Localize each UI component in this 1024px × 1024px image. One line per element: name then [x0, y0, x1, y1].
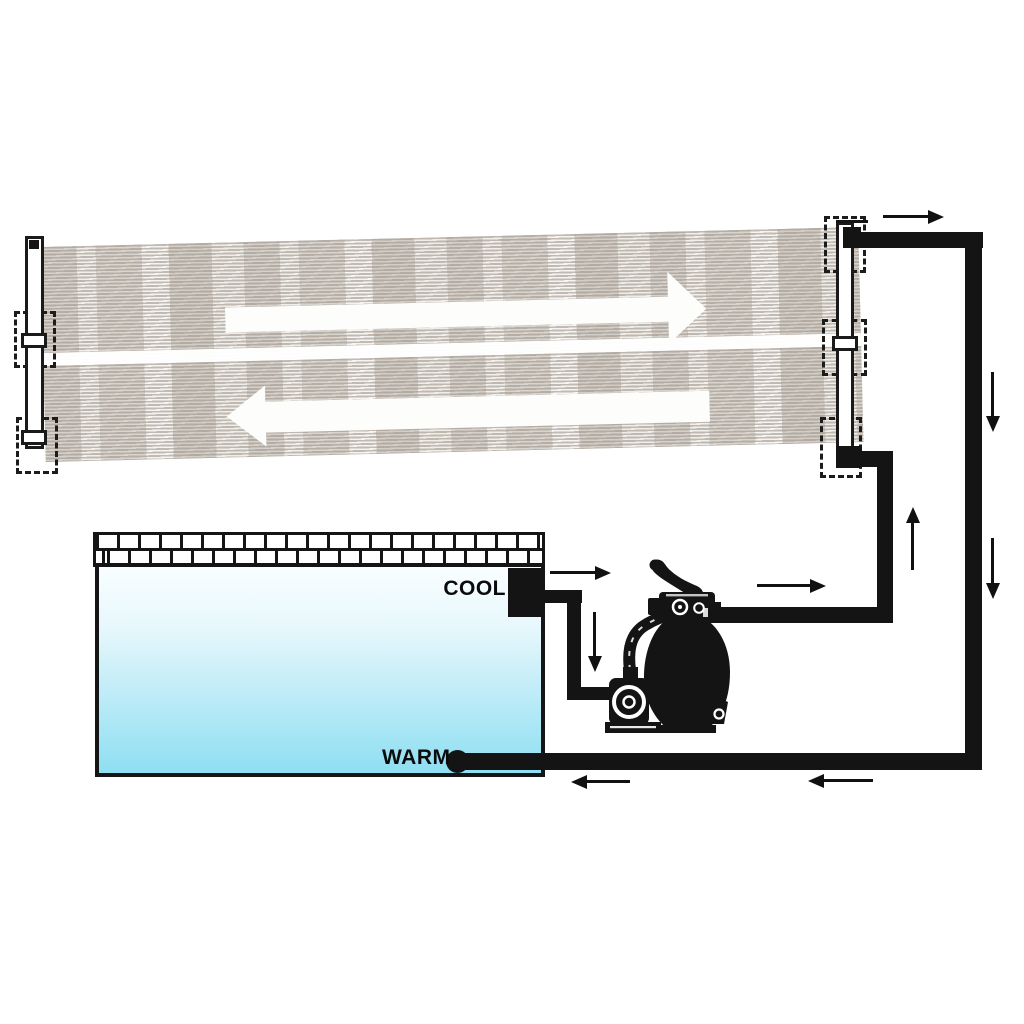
flow-arrow-pump-outlet-icon — [757, 584, 810, 587]
flow-arrow-return-left-inner-icon — [587, 780, 630, 783]
solar-collector-mat — [40, 227, 863, 462]
pipe-return-downcomer — [965, 232, 982, 770]
flow-arrow-return-left-outer-icon — [824, 779, 873, 782]
pipe-panel-return-top — [845, 232, 983, 248]
mat-center-gap — [43, 333, 861, 366]
manifold-left-cap — [29, 240, 39, 249]
skimmer-box — [508, 568, 543, 617]
sand-filter-pump — [602, 552, 742, 737]
flow-arrow-pool-outlet-icon — [550, 571, 595, 574]
hose-coupling — [21, 333, 47, 348]
flow-arrow-return-down-lower-icon — [991, 538, 994, 583]
pipe-panel-feed-h — [847, 451, 893, 467]
cool-label: COOL — [430, 578, 506, 599]
hose-coupling — [832, 336, 858, 351]
pool-tile-border — [93, 532, 545, 567]
flow-arrow-suction-down-icon — [593, 612, 596, 656]
panel-flow-arrow-left-icon — [226, 375, 710, 448]
pipe-pool-outlet-v — [567, 590, 581, 700]
manifold-right-top-tick — [836, 220, 868, 223]
hose-coupling — [21, 430, 47, 445]
flow-arrow-panel-outlet-icon — [883, 215, 928, 218]
tile-row — [96, 535, 542, 551]
warm-label: WARM — [382, 747, 451, 768]
flow-arrow-return-down-upper-icon — [991, 372, 994, 416]
pipe-warm-return — [458, 753, 982, 770]
pipe-panel-feed-riser — [877, 451, 893, 623]
mat-flow-overlay — [40, 227, 863, 462]
solar-pool-heater-diagram: COOL WARM — [0, 0, 1024, 1024]
flow-arrow-panel-feed-up-icon — [911, 523, 914, 570]
